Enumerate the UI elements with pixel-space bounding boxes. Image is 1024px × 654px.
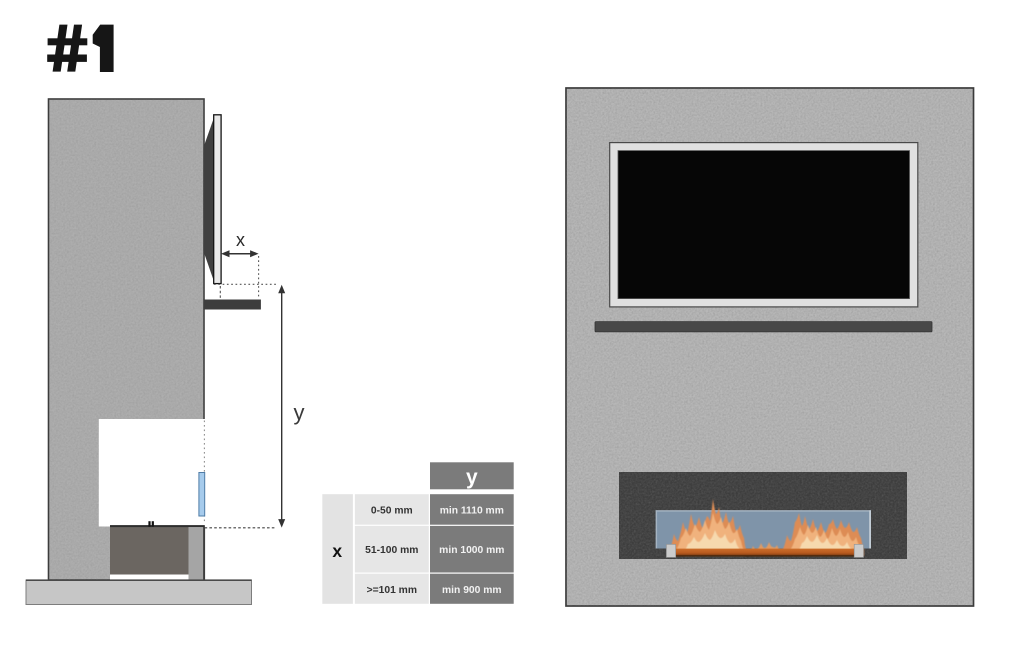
svg-text:min 900 mm: min 900 mm [442,585,502,596]
svg-text:x: x [332,541,342,561]
svg-text:y: y [294,400,305,425]
svg-text:x: x [236,230,245,250]
svg-text:min 1110 mm: min 1110 mm [440,506,504,517]
svg-text:>=101 mm: >=101 mm [367,585,417,596]
svg-text:51-100 mm: 51-100 mm [365,545,418,556]
svg-text:y: y [466,466,478,489]
svg-text:0-50 mm: 0-50 mm [371,506,413,517]
svg-text:min 1000 mm: min 1000 mm [439,545,504,556]
